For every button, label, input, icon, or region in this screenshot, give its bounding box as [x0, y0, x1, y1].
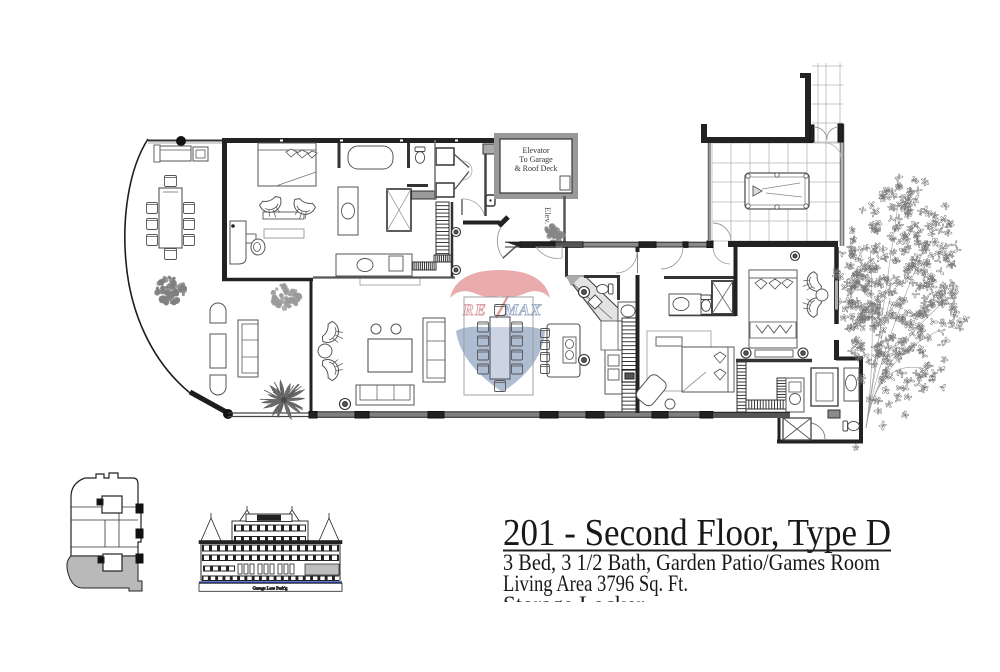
- svg-text:Garage Less Park'g: Garage Less Park'g: [253, 586, 289, 591]
- svg-text:Elev.: Elev.: [543, 207, 553, 224]
- svg-text:201 - Second Floor, Type D: 201 - Second Floor, Type D: [503, 512, 891, 554]
- svg-text:RE: RE: [462, 302, 487, 319]
- svg-text:& Roof Deck: & Roof Deck: [514, 164, 557, 173]
- svg-text:To Garage: To Garage: [519, 155, 553, 164]
- svg-text:Elevator: Elevator: [522, 146, 549, 155]
